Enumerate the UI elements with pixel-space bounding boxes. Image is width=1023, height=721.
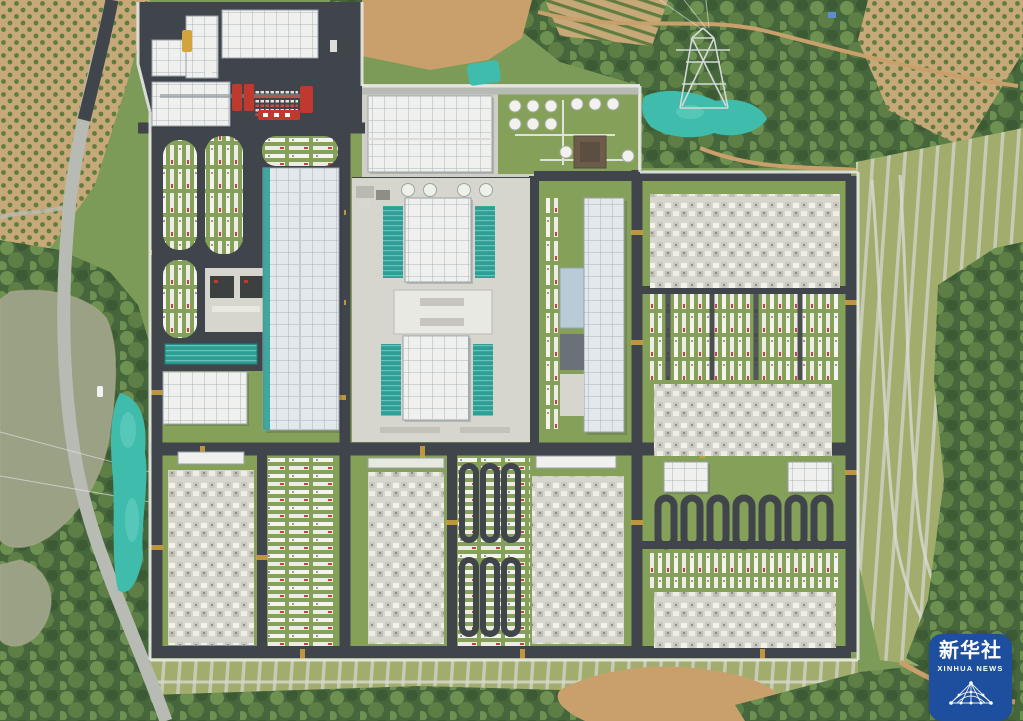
cooling-bank-row [165, 344, 257, 364]
cooling-edge-strip [263, 168, 270, 430]
storage-tank [607, 98, 619, 110]
aerial-scene [0, 0, 1023, 721]
converter-building-south [381, 336, 493, 422]
switchyard-bays-south [650, 552, 840, 588]
switchyard-bays [650, 294, 840, 380]
watermark-english-name: XINHUA NEWS [937, 664, 1003, 673]
red-container [300, 86, 313, 113]
storage-tank [571, 98, 583, 110]
storage-tank [560, 146, 572, 158]
bay-island [205, 136, 243, 254]
bay-island [163, 260, 197, 338]
equipment-pad [368, 472, 444, 644]
tarp-small [467, 60, 502, 86]
transformer-unit [210, 276, 234, 298]
switchyard-pad-mid [654, 384, 832, 456]
red-bus [258, 110, 300, 120]
storage-tank [509, 118, 521, 130]
relay-building [788, 462, 834, 494]
oil-tank [424, 184, 437, 197]
ac-switchyard [650, 194, 840, 648]
storage-tank [527, 118, 539, 130]
switchyard-pad-north [650, 194, 840, 288]
network-globe-icon [945, 676, 997, 708]
storage-tank [545, 100, 557, 112]
aerial-photo: 新华社 XINHUA NEWS [0, 0, 1023, 721]
connector-building [394, 290, 492, 334]
equipment-pad [168, 470, 254, 645]
annex-building [560, 334, 584, 370]
storage-tank [527, 100, 539, 112]
switchyard-pad-south [654, 592, 836, 648]
bay-island [262, 136, 338, 166]
converter-core-pad [352, 178, 530, 442]
car-on-road [97, 386, 103, 397]
storage-tank [622, 150, 634, 162]
canopy-building [163, 372, 249, 426]
transformer-unit [240, 276, 264, 298]
storage-tank [545, 118, 557, 130]
annex-building [560, 268, 584, 328]
cooling-bank [475, 206, 495, 278]
comb-bays-center [458, 458, 530, 650]
annex-pad [560, 374, 584, 416]
oil-tank [480, 184, 493, 197]
oil-tank [402, 184, 415, 197]
admin-building [152, 82, 232, 128]
xinhua-watermark: 新华社 XINHUA NEWS [929, 634, 1012, 721]
car [205, 62, 212, 74]
filter-yards-south [168, 452, 624, 650]
admin-building [222, 10, 320, 60]
storage-tank [589, 98, 601, 110]
gantry-canopy [368, 458, 444, 468]
converter-building-north [383, 198, 495, 284]
gantry-canopy [178, 452, 244, 464]
valve-hall-west [263, 168, 342, 433]
bay-strip [544, 198, 560, 432]
auxiliary-building [368, 96, 494, 174]
cooling-bank [381, 344, 401, 416]
transformer-pad [205, 268, 267, 332]
equipment-pad [532, 476, 624, 644]
equipment-cluster [376, 190, 390, 200]
yellow-truck [182, 30, 192, 52]
blue-tarp-tiny [828, 12, 836, 18]
cooling-bank [383, 206, 403, 278]
equipment-bays [268, 458, 336, 650]
equipment-cluster [356, 186, 374, 198]
gantry-canopy [536, 456, 616, 468]
fire-truck [232, 84, 242, 111]
storage-tank [509, 100, 521, 112]
relay-building [664, 462, 710, 494]
equipment-cluster [359, 200, 371, 208]
cooling-bank [473, 344, 493, 416]
bay-island [163, 140, 197, 250]
car [330, 40, 337, 52]
fire-truck [244, 84, 254, 111]
watermark-chinese-name: 新华社 [939, 641, 1002, 661]
valve-hall-east [544, 198, 627, 435]
admin-building [152, 40, 186, 76]
oil-tank [458, 184, 471, 197]
